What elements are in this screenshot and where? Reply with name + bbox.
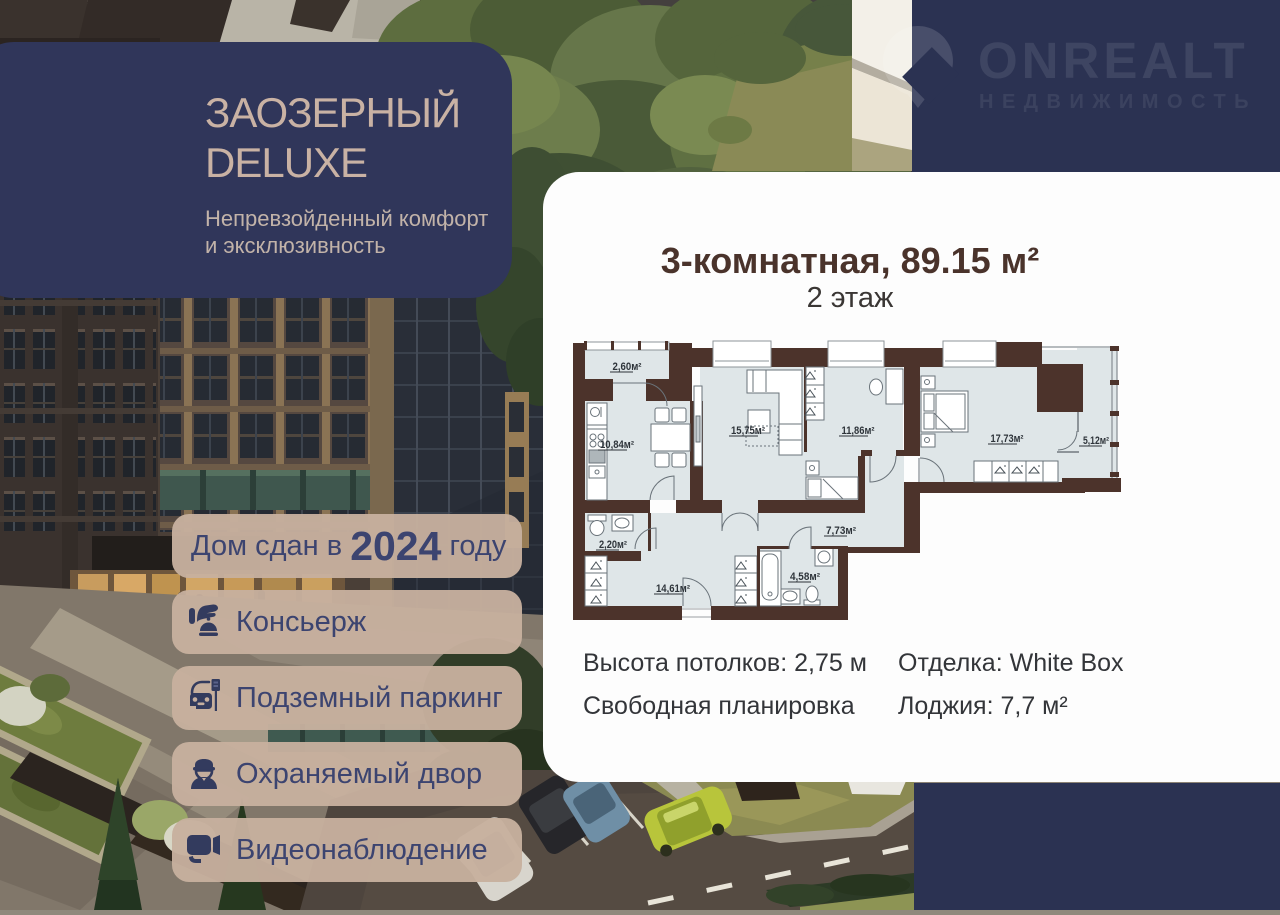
svg-text:2,60м²: 2,60м² <box>613 361 642 373</box>
svg-text:17,73м²: 17,73м² <box>991 433 1024 445</box>
svg-text:7,73м²: 7,73м² <box>826 525 856 537</box>
svg-text:2,20м²: 2,20м² <box>599 539 627 551</box>
svg-text:15,75м²: 15,75м² <box>731 425 765 437</box>
svg-text:11,86м²: 11,86м² <box>842 425 875 437</box>
svg-text:5,12м²: 5,12м² <box>1083 435 1109 447</box>
svg-text:ONREALT: ONREALT <box>978 32 1249 89</box>
svg-text:4,58м²: 4,58м² <box>790 571 820 583</box>
svg-text:НЕДВИЖИМОСТЬ: НЕДВИЖИМОСТЬ <box>979 91 1257 113</box>
svg-text:10,84м²: 10,84м² <box>600 439 634 451</box>
svg-text:14,61м²: 14,61м² <box>656 583 690 595</box>
